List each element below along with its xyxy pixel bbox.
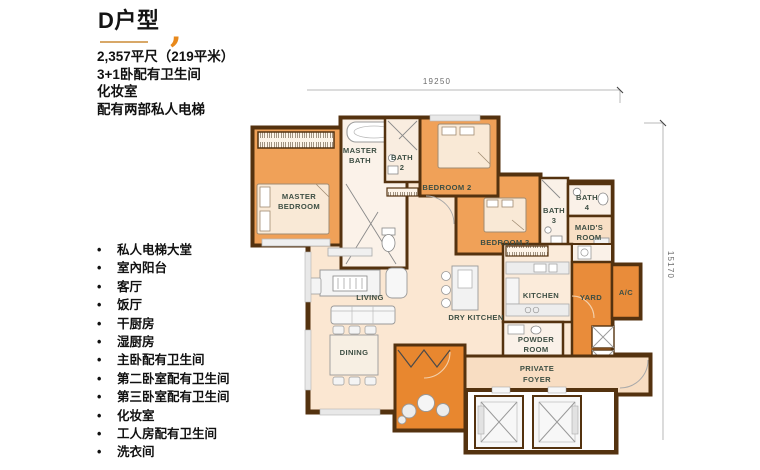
room-label-bath-3: 3: [552, 216, 557, 225]
room-kitchen: [503, 244, 572, 322]
room-label-private-foyer: PRIVATE: [520, 364, 554, 373]
window-icon: [320, 409, 380, 415]
floorplan-svg: MASTER BEDROOM MASTER BATH BATH 2 BEDROO…: [0, 0, 760, 470]
toilet-icon: [531, 326, 541, 334]
window-icon: [305, 330, 311, 390]
wardrobe-hatch: [387, 188, 418, 196]
room-label-bedroom-2: BEDROOM 2: [422, 183, 471, 192]
room-label-ac: A/C: [619, 288, 633, 297]
elevator-icon: [475, 387, 523, 448]
room-label-master-bedroom: MASTER: [282, 192, 316, 201]
room-label-master-bath: BATH: [349, 156, 371, 165]
room-label-dry-kitchen: DRY KITCHEN: [448, 313, 503, 322]
room-label-maids-room: ROOM: [576, 233, 601, 242]
room-label-maids-room: MAID'S: [575, 223, 603, 232]
room-label-kitchen: KITCHEN: [523, 291, 559, 300]
room-master-bedroom: [253, 128, 341, 246]
console-icon: [328, 248, 372, 256]
toilet-icon: [598, 193, 608, 205]
room-balcony: [395, 345, 465, 430]
elevator-icon: [533, 387, 581, 448]
room-label-powder-room: ROOM: [523, 345, 548, 354]
dimension-width-label: 19250: [423, 77, 451, 86]
room-label-bath-2: BATH: [391, 153, 413, 162]
room-label-bath-3: BATH: [543, 206, 565, 215]
sofa-icon: [331, 306, 395, 324]
sink-icon: [545, 227, 551, 233]
room-label-powder-room: POWDER: [518, 335, 554, 344]
room-label-master-bath: MASTER: [343, 146, 377, 155]
washer-icon: [578, 246, 591, 259]
sink-icon: [508, 325, 524, 334]
room-label-bath-4: BATH: [576, 193, 598, 202]
room-label-private-foyer: FOYER: [523, 375, 551, 384]
bed-icon: [484, 198, 526, 232]
room-label-bath-4: 4: [585, 203, 590, 212]
room-label-bath-2: 2: [400, 163, 405, 172]
kitchen-island-icon: [442, 266, 479, 310]
armchair-icon: [386, 268, 407, 298]
dimension-top: 19250: [307, 77, 623, 103]
wardrobe-hatch: [258, 132, 334, 148]
room-yard: [572, 244, 614, 372]
window-ledge: [262, 239, 330, 246]
toilet-icon: [388, 166, 398, 174]
elevator-block: [466, 387, 616, 452]
bed-icon: [438, 124, 490, 168]
dimension-height-label: 15170: [666, 251, 675, 279]
window-icon: [430, 115, 480, 121]
toilet-icon: [382, 228, 395, 252]
wardrobe-hatch: [506, 246, 548, 256]
room-label-living: LIVING: [356, 293, 383, 302]
room-label-yard: YARD: [580, 293, 602, 302]
room-label-bedroom-3: BEDROOM 3: [480, 238, 529, 247]
room-label-master-bedroom: BEDROOM: [278, 202, 320, 211]
window-icon: [305, 252, 311, 302]
room-label-dining: DINING: [340, 348, 369, 357]
